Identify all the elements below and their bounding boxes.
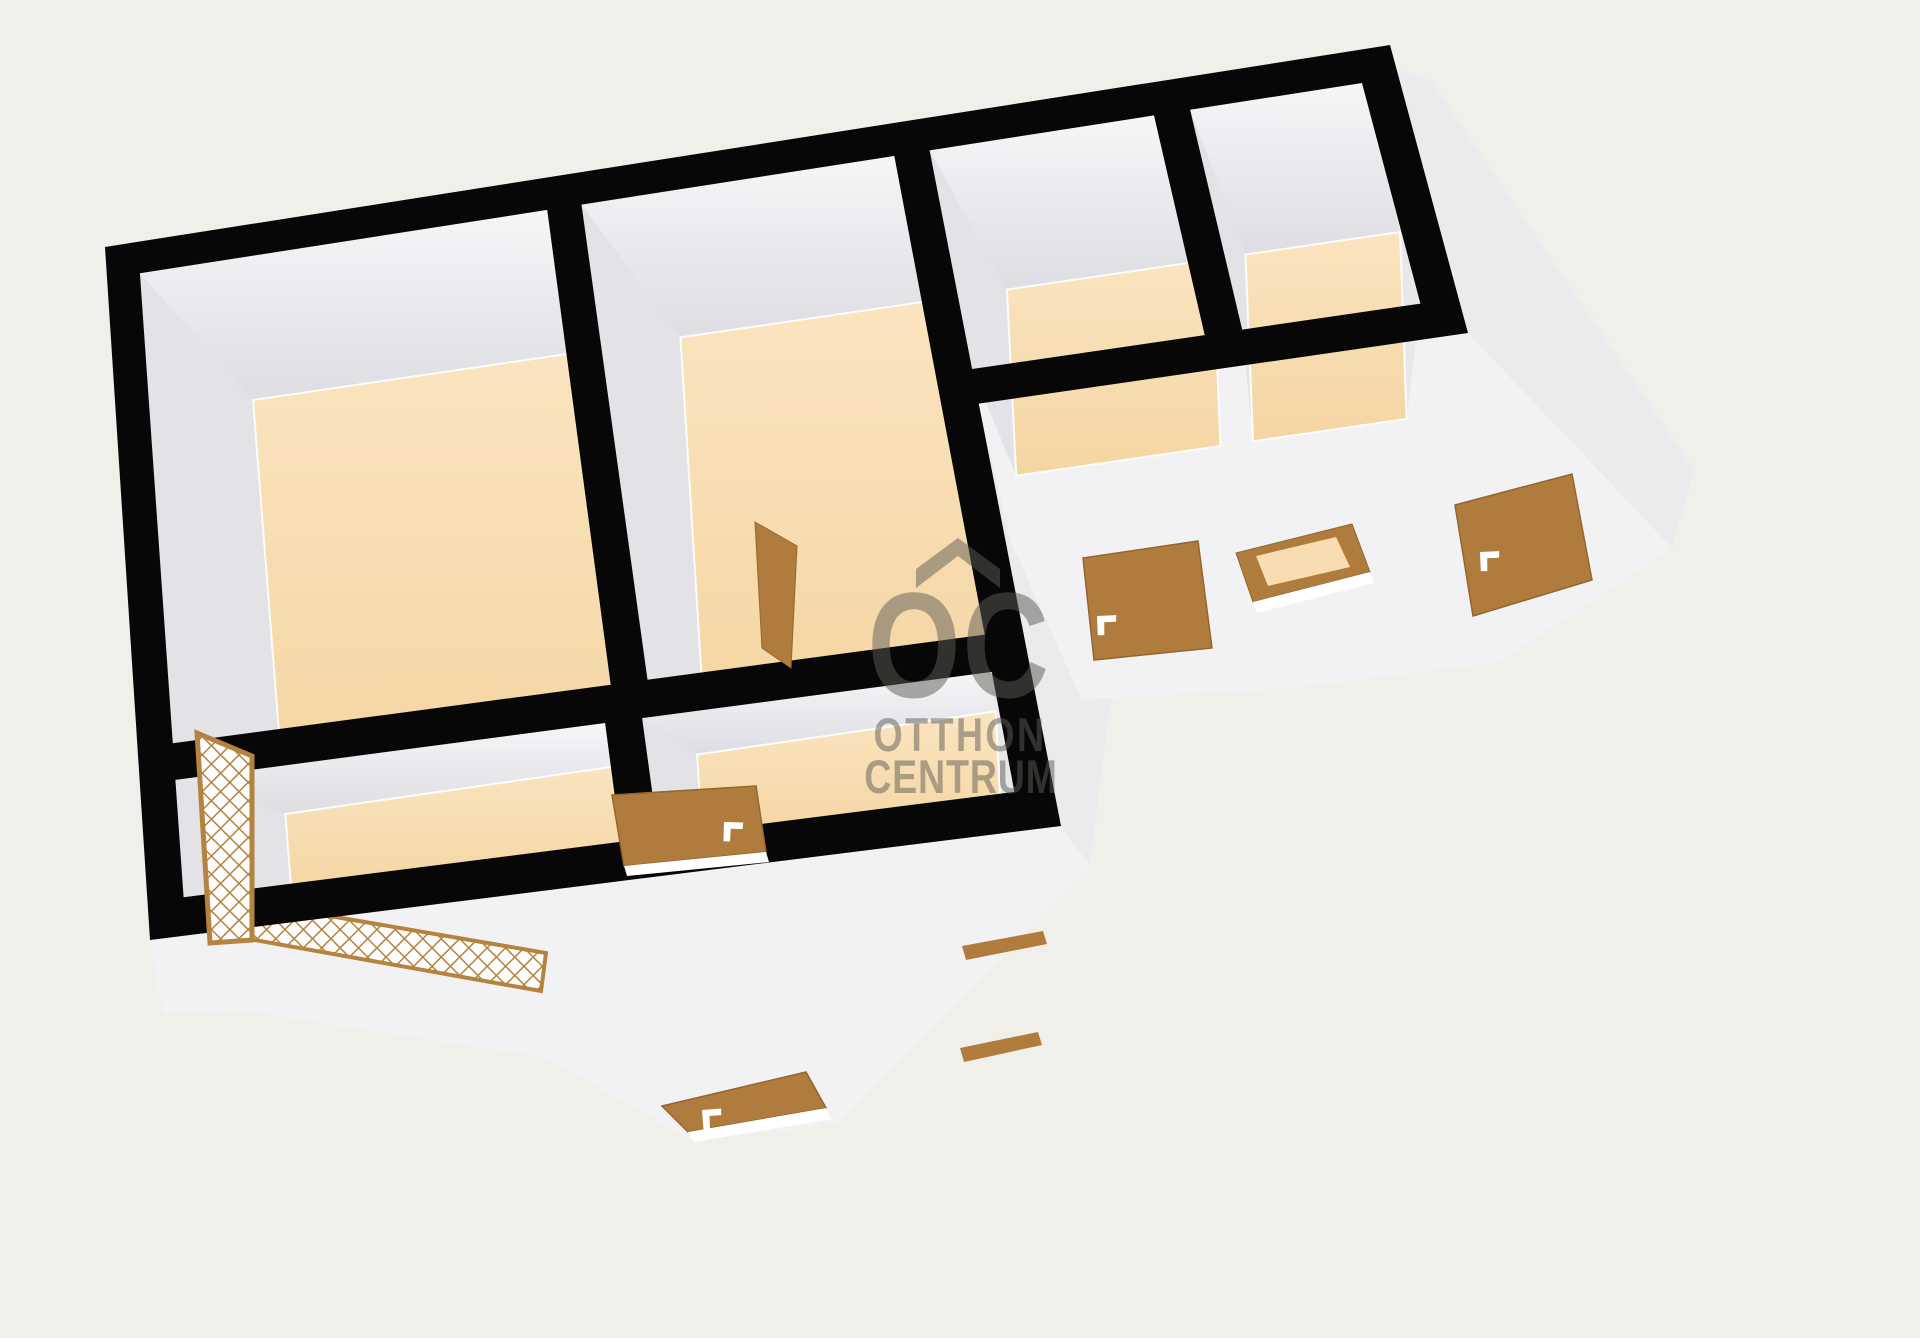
watermark-initials: OC [867,561,1050,729]
wing-door-1 [1083,541,1212,660]
interior-door-open [612,786,766,866]
floor-plan-canvas: OCOTTHONCENTRUM [0,0,1920,1338]
watermark-line2: CENTRUM [864,751,1058,804]
watermark-logo: OCOTTHONCENTRUM [864,538,1058,804]
floor-plan-scene: OCOTTHONCENTRUM [0,0,1920,1338]
